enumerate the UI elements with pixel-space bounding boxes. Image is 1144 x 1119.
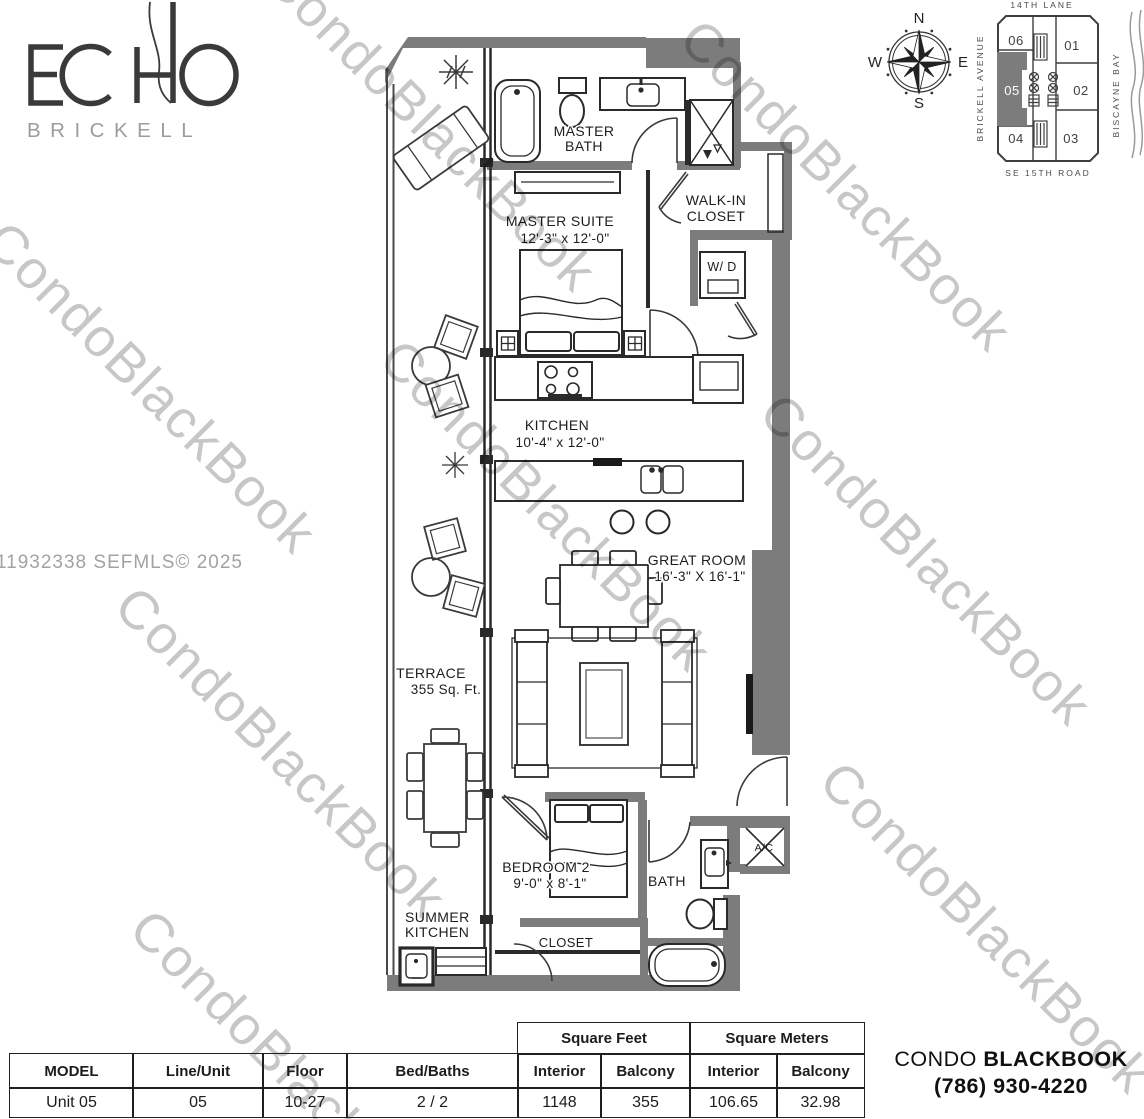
label-bedroom2: BEDROOM 2: [502, 859, 590, 875]
terrace-dining-table: [424, 744, 466, 832]
table-group-square-feet: Square Feet: [517, 1022, 691, 1055]
pillow: [555, 805, 588, 822]
building-keyplan: 06 01 02 04 03 05 14TH LANE SE 15TH ROAD…: [975, 0, 1144, 178]
sofa-arm: [661, 630, 694, 642]
footer-brand-first: CONDO: [894, 1047, 977, 1071]
label-master-suite: MASTER SUITE: [506, 213, 614, 229]
toilet2-tank: [714, 899, 727, 929]
sofa-left: [517, 642, 547, 765]
coffee-table: [580, 663, 628, 745]
floorplan-flyer: ECHO BRICKELL: [0, 0, 1144, 1119]
table-col-model: MODEL: [9, 1053, 134, 1089]
terrace-chair: [426, 375, 469, 418]
compass-east-label: E: [958, 54, 968, 71]
terrace-dining-chair: [431, 729, 459, 743]
table-col-balcony-sm: Balcony: [776, 1053, 865, 1089]
terrace-chair: [434, 315, 478, 359]
lounge-chair: [392, 105, 490, 191]
dining-chair: [572, 551, 598, 565]
pillow: [590, 805, 623, 822]
sofa-right: [662, 642, 692, 765]
shoreline: [1130, 10, 1143, 158]
label-great-room: GREAT ROOM: [648, 552, 746, 568]
keyplan-unit-02: 02: [1073, 83, 1088, 98]
bedroom2-door: [502, 795, 549, 840]
label-summer-kitchen-1: SUMMER: [405, 909, 470, 925]
echo-brickell-logo: BRICKELL: [27, 2, 236, 142]
logo-flourish: [149, 2, 171, 103]
mls-note: 11932338 SEFMLS© 2025: [0, 552, 243, 574]
table-group-square-meters: Square Meters: [689, 1022, 865, 1055]
toilet-tank: [559, 78, 586, 93]
terrace-dining-chair: [467, 753, 483, 781]
label-bath: BATH: [648, 873, 686, 889]
table-value-balcony-sf: 355: [600, 1087, 691, 1118]
terrace-dining-chair: [431, 833, 459, 847]
label-ac: A/C: [755, 842, 774, 854]
terrace-round-table: [412, 558, 450, 596]
plant: [442, 452, 468, 478]
table-col-balcony-sf: Balcony: [600, 1053, 691, 1089]
sofa-arm: [515, 630, 548, 642]
label-walkin-1: WALK-IN: [686, 192, 747, 208]
bar-stool: [647, 511, 670, 534]
dining-table: [560, 565, 648, 627]
compass-west-label: W: [868, 54, 883, 71]
keyplan-unit-06: 06: [1008, 33, 1023, 48]
logo-sub-label: BRICKELL: [27, 119, 202, 142]
compass-star: [887, 30, 951, 94]
dining-chair: [572, 627, 598, 641]
table-value-bed-baths: 2 / 2: [346, 1087, 519, 1118]
label-summer-kitchen-2: KITCHEN: [405, 924, 469, 940]
floorplan: MASTER BATH WALK-IN CLOSET W/ D MASTER S…: [385, 37, 792, 991]
master-suite-fixtures: [497, 172, 645, 356]
kitchen-island: [495, 461, 743, 501]
vanity-sink: [627, 84, 659, 106]
table-col-line-unit: Line/Unit: [132, 1053, 264, 1089]
table-col-bed-baths: Bed/Baths: [346, 1053, 519, 1089]
great-room-furniture: [512, 551, 753, 777]
master-suite-door: [650, 310, 698, 358]
master-bath-door: [632, 118, 677, 163]
dishwasher: [593, 458, 622, 466]
keyplan-unit-01: 01: [1064, 38, 1079, 53]
spec-table: Square Feet Square Meters MODEL Line/Uni…: [10, 1023, 864, 1117]
logo-echo-glyphs: [31, 2, 236, 104]
dining-chair: [610, 627, 636, 641]
label-kitchen-dims: 10'-4" x 12'-0": [515, 435, 604, 450]
label-kitchen: KITCHEN: [525, 417, 589, 433]
bar-stool: [611, 511, 634, 534]
pillow: [574, 332, 619, 351]
washer-dryer: [700, 252, 745, 298]
label-bedroom2-dims: 9'-0" x 8'-1": [513, 876, 586, 891]
sofa-arm: [661, 765, 694, 777]
table-value-model: Unit 05: [9, 1087, 134, 1118]
bath2-door: [649, 820, 690, 862]
table-value-line-unit: 05: [132, 1087, 264, 1118]
keyplan-unit-03: 03: [1063, 131, 1078, 146]
table-col-interior-sf: Interior: [517, 1053, 602, 1089]
label-master-bath-1: MASTER: [554, 123, 615, 139]
sofa-arm: [515, 765, 548, 777]
master-bath-fixtures: [495, 78, 733, 165]
table-value-interior-sm: 106.65: [689, 1087, 778, 1118]
pillow: [526, 332, 571, 351]
table-value-interior-sf: 1148: [517, 1087, 602, 1118]
label-terrace-area: 355 Sq. Ft.: [411, 682, 481, 697]
terrace-furniture: [392, 55, 490, 847]
terrace-chair: [424, 518, 466, 560]
footer-brand-second: BLACKBOOK: [983, 1047, 1127, 1071]
entry-door: [737, 757, 787, 806]
label-walkin-2: CLOSET: [687, 208, 745, 224]
compass-north-label: N: [914, 10, 925, 27]
table-col-floor: Floor: [262, 1053, 348, 1089]
tv: [746, 674, 753, 734]
terrace-railing: [387, 68, 394, 975]
terrace-dining-chair: [467, 791, 483, 819]
street-biscayne-bay: BISCAYNE BAY: [1111, 52, 1121, 137]
toilet2-bowl: [687, 900, 714, 929]
terrace-dining-chair: [407, 753, 423, 781]
footer-brand: CONDO BLACKBOOK (786) 930-4220: [880, 1046, 1142, 1100]
dining-chair: [546, 578, 560, 604]
compass-rose: N S W E: [868, 10, 968, 112]
label-wd: W/ D: [707, 260, 736, 274]
keyplan-unit-04: 04: [1008, 131, 1023, 146]
label-closet: CLOSET: [539, 935, 593, 950]
wd-door: [728, 302, 757, 339]
walkin-closet-door: [659, 172, 688, 223]
footer-brand-name: CONDO BLACKBOOK: [880, 1046, 1142, 1073]
window-wall: [485, 48, 491, 975]
walkin-shelf: [768, 154, 783, 232]
label-master-bath-2: BATH: [565, 138, 603, 154]
terrace-dining-chair: [407, 791, 423, 819]
street-se-15th-road: SE 15TH ROAD: [1005, 168, 1090, 178]
label-master-suite-dims: 12'-3" x 12'-0": [520, 231, 609, 246]
label-terrace: TERRACE: [396, 665, 466, 681]
street-brickell-avenue: BRICKELL AVENUE: [975, 34, 985, 141]
compass-south-label: S: [914, 95, 924, 112]
kitchen-counter: [495, 357, 693, 400]
table-col-interior-sm: Interior: [689, 1053, 778, 1089]
table-value-balcony-sm: 32.98: [776, 1087, 865, 1118]
plant: [439, 55, 473, 89]
table-value-floor: 10-27: [262, 1087, 348, 1118]
terrace-chair: [443, 575, 485, 617]
label-great-room-dims: 16'-3" X 16'-1": [654, 569, 745, 584]
street-14th-lane: 14TH LANE: [1010, 0, 1073, 10]
dining-chair: [610, 551, 636, 565]
grill-counter: [436, 948, 486, 975]
keyplan-unit-05: 05: [1004, 83, 1019, 98]
footer-phone: (786) 930-4220: [880, 1073, 1142, 1100]
